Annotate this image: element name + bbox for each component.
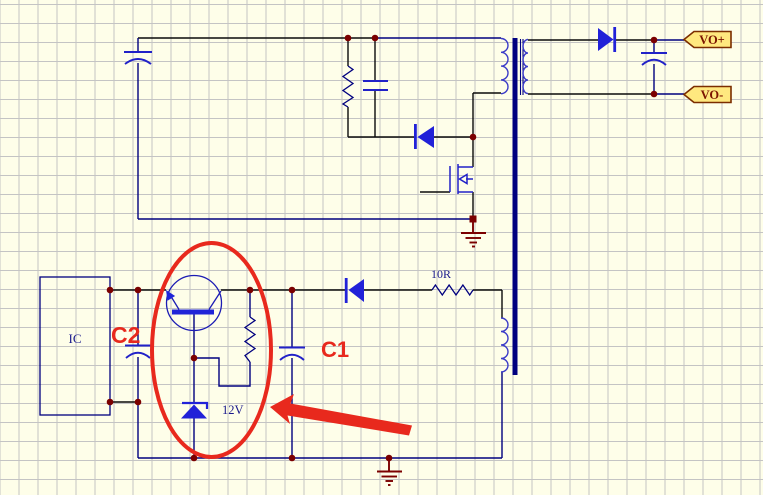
transistor-emitter-arrow <box>166 290 175 301</box>
ic-label: IC <box>69 331 82 346</box>
aux-resistor[interactable] <box>432 285 473 295</box>
primary-ground-icon <box>461 222 486 247</box>
transformer[interactable] <box>501 38 528 375</box>
wires <box>138 38 684 458</box>
snubber-resistor[interactable] <box>343 66 353 107</box>
zener-voltage-label: 12V <box>222 403 244 417</box>
aux-diode[interactable] <box>345 278 364 303</box>
annotation-c2: C2 <box>111 322 140 348</box>
input-capacitor[interactable] <box>124 52 152 64</box>
schematic-drawing: VO+ VO- IC 12V <box>0 0 763 495</box>
bias-resistor[interactable] <box>245 317 255 362</box>
vo-minus-label: VO- <box>701 88 724 102</box>
auxiliary-winding <box>501 318 508 372</box>
ic-block[interactable]: IC <box>40 277 110 415</box>
vo-plus-label: VO+ <box>699 33 725 47</box>
output-diode[interactable] <box>598 27 616 52</box>
junction-dots <box>107 35 658 462</box>
mosfet-arrow-icon <box>460 175 468 184</box>
aux-resistor-label: 10R <box>431 267 451 281</box>
primary-winding <box>501 39 508 94</box>
annotation-c1: C1 <box>321 337 349 362</box>
bottom-ground-icon <box>377 458 402 485</box>
source-junction-square <box>470 216 477 223</box>
vo-minus-port[interactable]: VO- <box>684 87 731 103</box>
pin-wires <box>110 38 654 402</box>
vo-plus-port[interactable]: VO+ <box>684 32 731 48</box>
secondary-winding <box>523 40 528 94</box>
schematic-canvas: VO+ VO- IC 12V <box>0 0 763 495</box>
snubber-capacitor[interactable] <box>363 81 388 90</box>
transistor-base-bar <box>172 310 214 315</box>
transformer-core <box>513 38 518 375</box>
snubber-diode[interactable] <box>414 124 434 149</box>
zener-diode[interactable] <box>181 403 207 419</box>
mosfet[interactable] <box>450 164 473 194</box>
output-capacitor[interactable] <box>641 53 667 65</box>
